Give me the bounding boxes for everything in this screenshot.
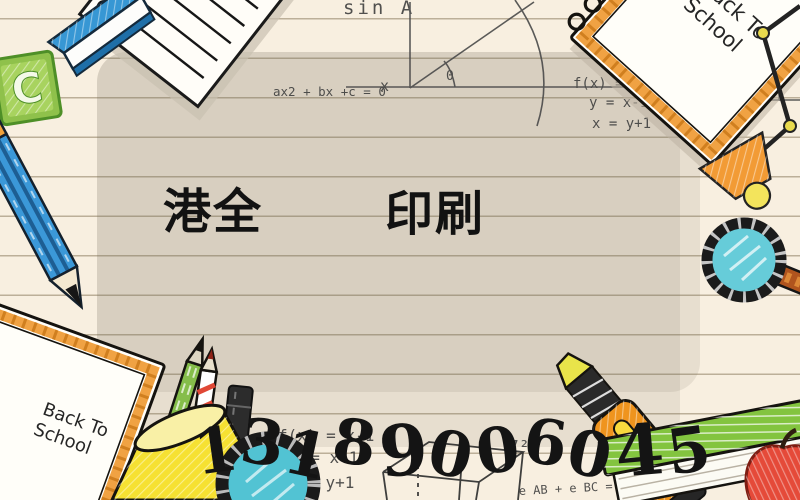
page-title-part2: 印刷 xyxy=(385,174,485,244)
quadratic-text: ax2 + bx +c = 0 xyxy=(273,84,386,99)
letter-tile: C xyxy=(0,51,62,126)
magnifier-doodle xyxy=(707,223,800,304)
phone-number: 13189006045 xyxy=(194,414,713,484)
sin-a-text: sin A xyxy=(343,0,415,19)
fx-top-3: x = y+1 xyxy=(592,116,651,132)
page-title-part1: 港全 xyxy=(163,172,263,242)
pencil-doodle-blue xyxy=(0,120,95,314)
poster-canvas: sin A 0 x ax2 + bx +c = 0 3X2+ f(x) = x-… xyxy=(0,0,800,500)
angle-label: 0 xyxy=(446,69,454,84)
